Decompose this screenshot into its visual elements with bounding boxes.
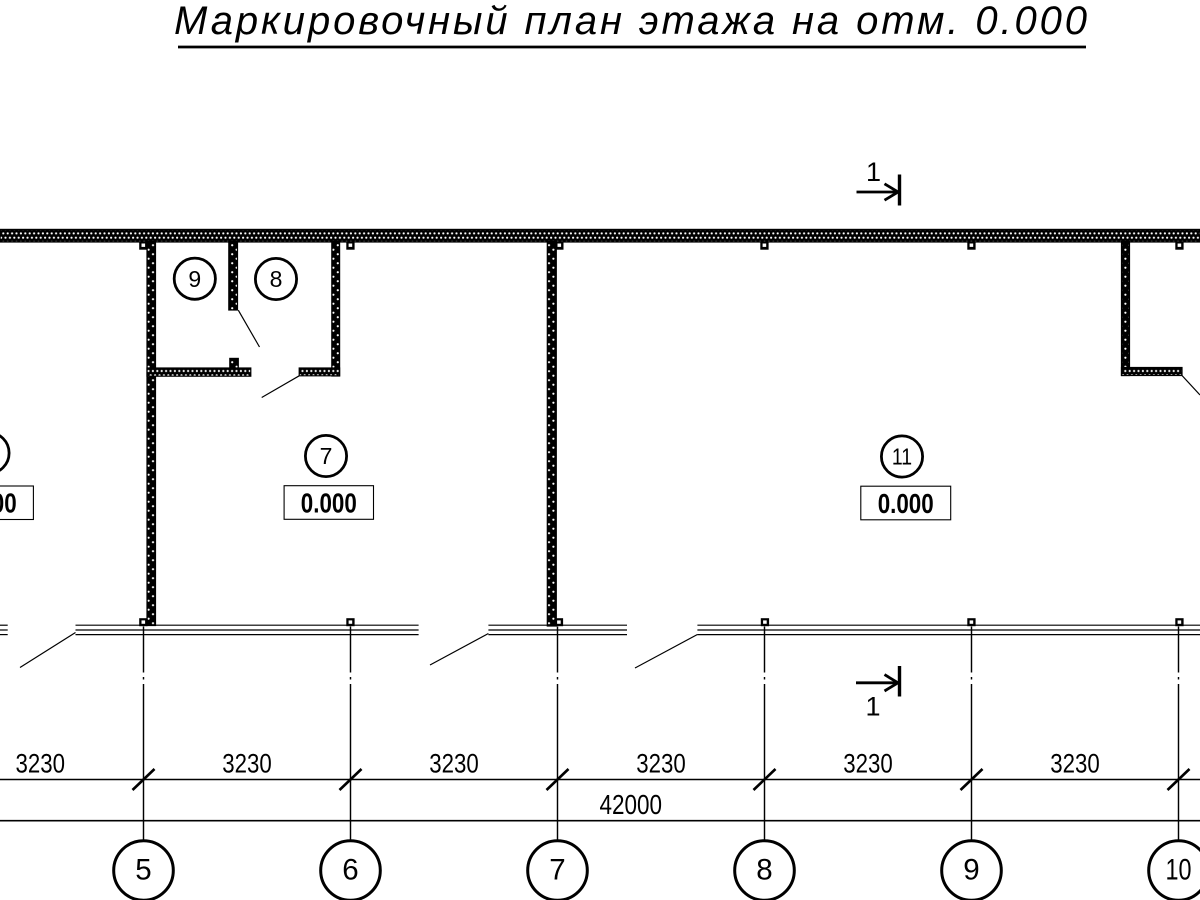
svg-text:3230: 3230 [843,749,893,779]
svg-text:7: 7 [320,443,333,469]
svg-text:3230: 3230 [636,749,686,779]
svg-text:3230: 3230 [429,749,479,779]
svg-text:5: 5 [135,854,151,887]
svg-text:0.000: 0.000 [878,488,934,519]
svg-text:10: 10 [1166,854,1192,887]
svg-text:0.000: 0.000 [0,488,17,519]
svg-text:11: 11 [892,444,912,470]
svg-text:6: 6 [342,854,358,887]
svg-text:3230: 3230 [16,749,66,779]
svg-text:Маркировочный план этажа на от: Маркировочный план этажа на отм. 0.000 [174,0,1090,43]
svg-text:1: 1 [865,692,880,722]
svg-text:7: 7 [549,854,565,887]
svg-text:8: 8 [270,266,283,292]
svg-text:1: 1 [866,157,881,187]
svg-text:8: 8 [756,854,772,887]
svg-text:3230: 3230 [1050,749,1100,779]
svg-text:9: 9 [188,266,201,292]
svg-text:42000: 42000 [600,789,663,820]
svg-text:9: 9 [963,854,979,887]
svg-text:3230: 3230 [222,749,272,779]
svg-text:0.000: 0.000 [301,488,357,519]
